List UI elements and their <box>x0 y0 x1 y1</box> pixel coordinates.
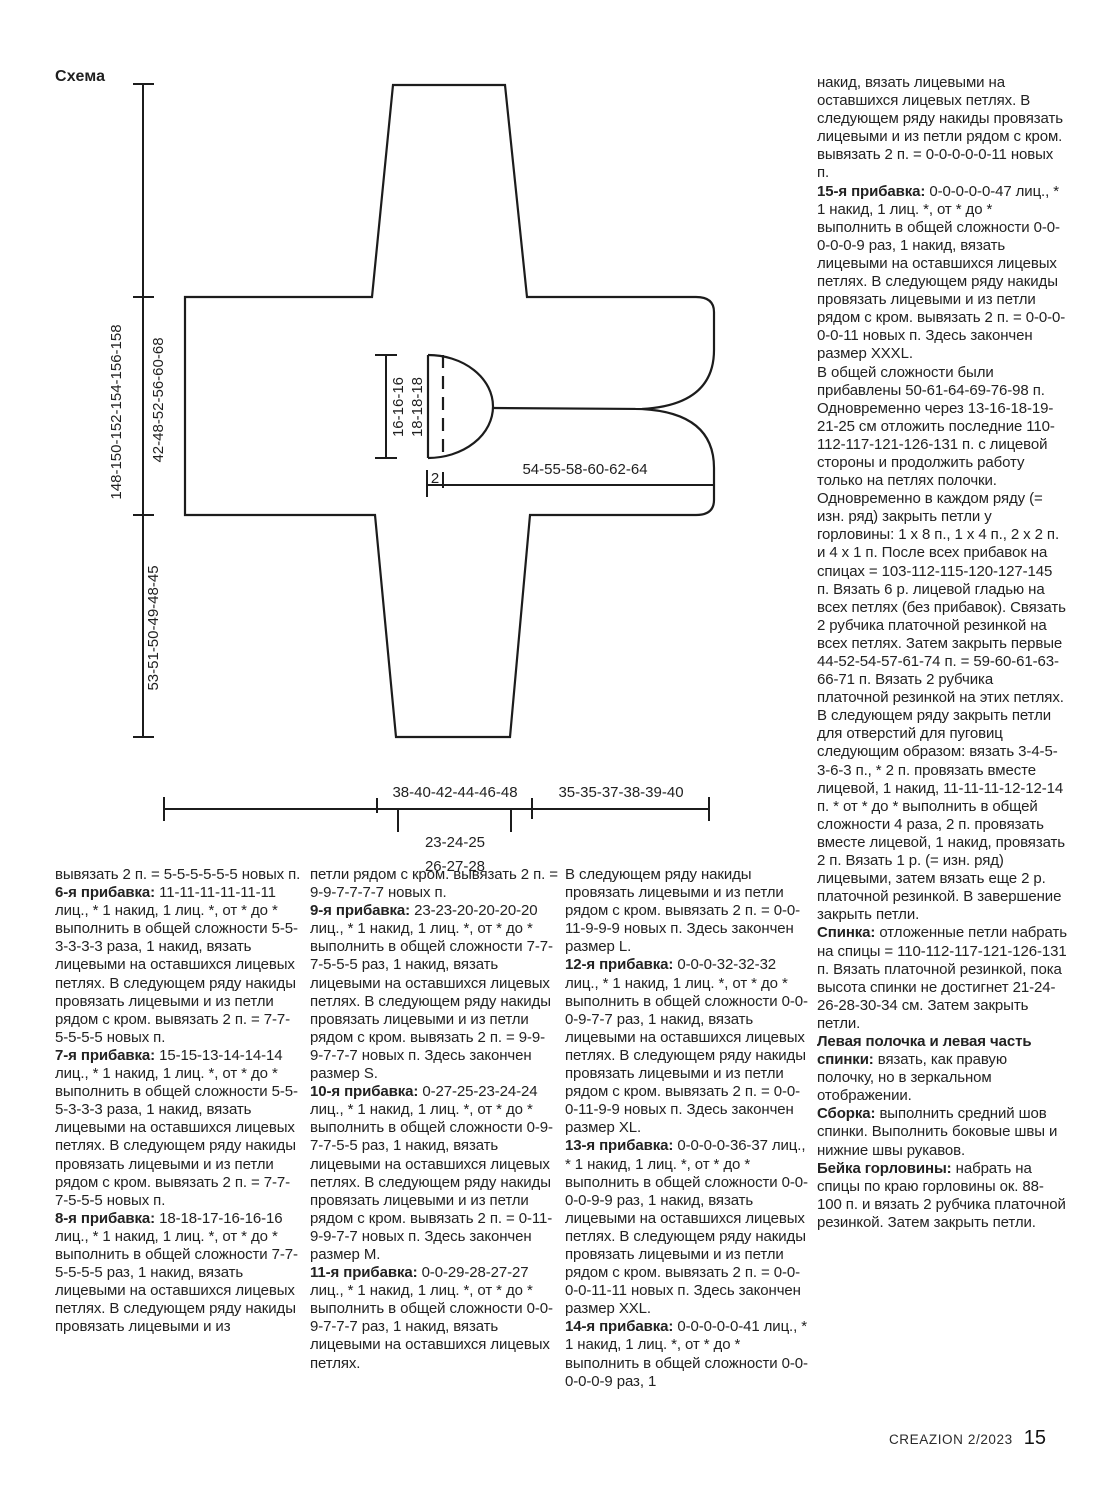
paragraph: 13-я прибавка: 0-0-0-0-36-37 лиц., * 1 н… <box>565 1137 813 1318</box>
paragraph: 11-я прибавка: 0-0-29-28-27-27 лиц., * 1… <box>310 1264 558 1373</box>
knitting-schematic: 16-16-16 18-18-18 148-150-152-154-156-15… <box>40 60 760 875</box>
paragraph: 14-я прибавка: 0-0-0-0-0-41 лиц., * 1 на… <box>565 1318 813 1390</box>
label-total-width: 148-150-152-154-156-158 <box>108 324 125 499</box>
label-hem-left: 38-40-42-44-46-48 <box>392 784 517 801</box>
label-neck-depth-a: 16-16-16 <box>390 377 407 437</box>
instruction-column-3: В следующем ряду накиды провязать лицевы… <box>565 866 813 1391</box>
paragraph: накид, вязать лицевыми на оставшихся лиц… <box>817 74 1067 183</box>
neck-curve <box>428 355 493 458</box>
magazine-page: Схема 16-16-16 18-18-18 148-150-152 <box>0 0 1100 1486</box>
label-cuff-a: 23-24-25 <box>425 834 485 851</box>
paragraph: Сборка: выполнить средний шов спинки. Вы… <box>817 1105 1067 1159</box>
paragraph: 15-я прибавка: 0-0-0-0-0-47 лиц., * 1 на… <box>817 183 1067 364</box>
label-neck-depth-b: 18-18-18 <box>409 377 426 437</box>
label-body-section: 42-48-52-56-60-68 <box>150 337 167 462</box>
hem-measure-line <box>164 797 709 832</box>
paragraph: 8-я прибавка: 18-18-17-16-16-16 лиц., * … <box>55 1210 303 1337</box>
paragraph: 6-я прибавка: 11-11-11-11-11-11 лиц., * … <box>55 884 303 1047</box>
front-split-line <box>493 408 642 409</box>
instruction-column-1: вывязать 2 п. = 5-5-5-5-5-5 новых п.6-я … <box>55 866 303 1336</box>
paragraph: 10-я прибавка: 0-27-25-23-24-24 лиц., * … <box>310 1083 558 1264</box>
paragraph: Бейка горловины: набрать на спицы по кра… <box>817 1160 1067 1232</box>
paragraph: Одновременно через 13-16-18-19-21-25 см … <box>817 400 1067 925</box>
paragraph: Левая полочка и левая часть спинки: вяза… <box>817 1033 1067 1105</box>
label-sleeve-section: 53-51-50-49-48-45 <box>145 565 162 690</box>
instruction-column-2: петли рядом с кром. вывязать 2 п. = 9-9-… <box>310 866 558 1373</box>
label-front-edge: 54-55-58-60-62-64 <box>522 461 647 478</box>
paragraph: Спинка: отложенные петли набрать на спиц… <box>817 924 1067 1033</box>
label-neck-offset: 2 <box>431 470 439 487</box>
paragraph: петли рядом с кром. вывязать 2 п. = 9-9-… <box>310 866 558 902</box>
magazine-title: CREAZION 2/2023 <box>889 1432 1013 1447</box>
label-hem-right: 35-35-37-38-39-40 <box>558 784 683 801</box>
paragraph: 12-я прибавка: 0-0-0-32-32-32 лиц., * 1 … <box>565 956 813 1137</box>
page-number: 15 <box>1024 1427 1046 1450</box>
neckline <box>428 355 642 458</box>
paragraph: 9-я прибавка: 23-23-20-20-20-20 лиц., * … <box>310 902 558 1083</box>
garment-outline <box>185 85 714 737</box>
paragraph: вывязать 2 п. = 5-5-5-5-5-5 новых п. <box>55 866 303 884</box>
paragraph: В следующем ряду накиды провязать лицевы… <box>565 866 813 956</box>
page-footer: CREAZION 2/2023 15 <box>889 1427 1046 1450</box>
paragraph: 7-я прибавка: 15-15-13-14-14-14 лиц., * … <box>55 1047 303 1210</box>
instruction-column-4: накид, вязать лицевыми на оставшихся лиц… <box>817 74 1067 1232</box>
paragraph: В общей сложности были прибавлены 50-61-… <box>817 364 1067 400</box>
